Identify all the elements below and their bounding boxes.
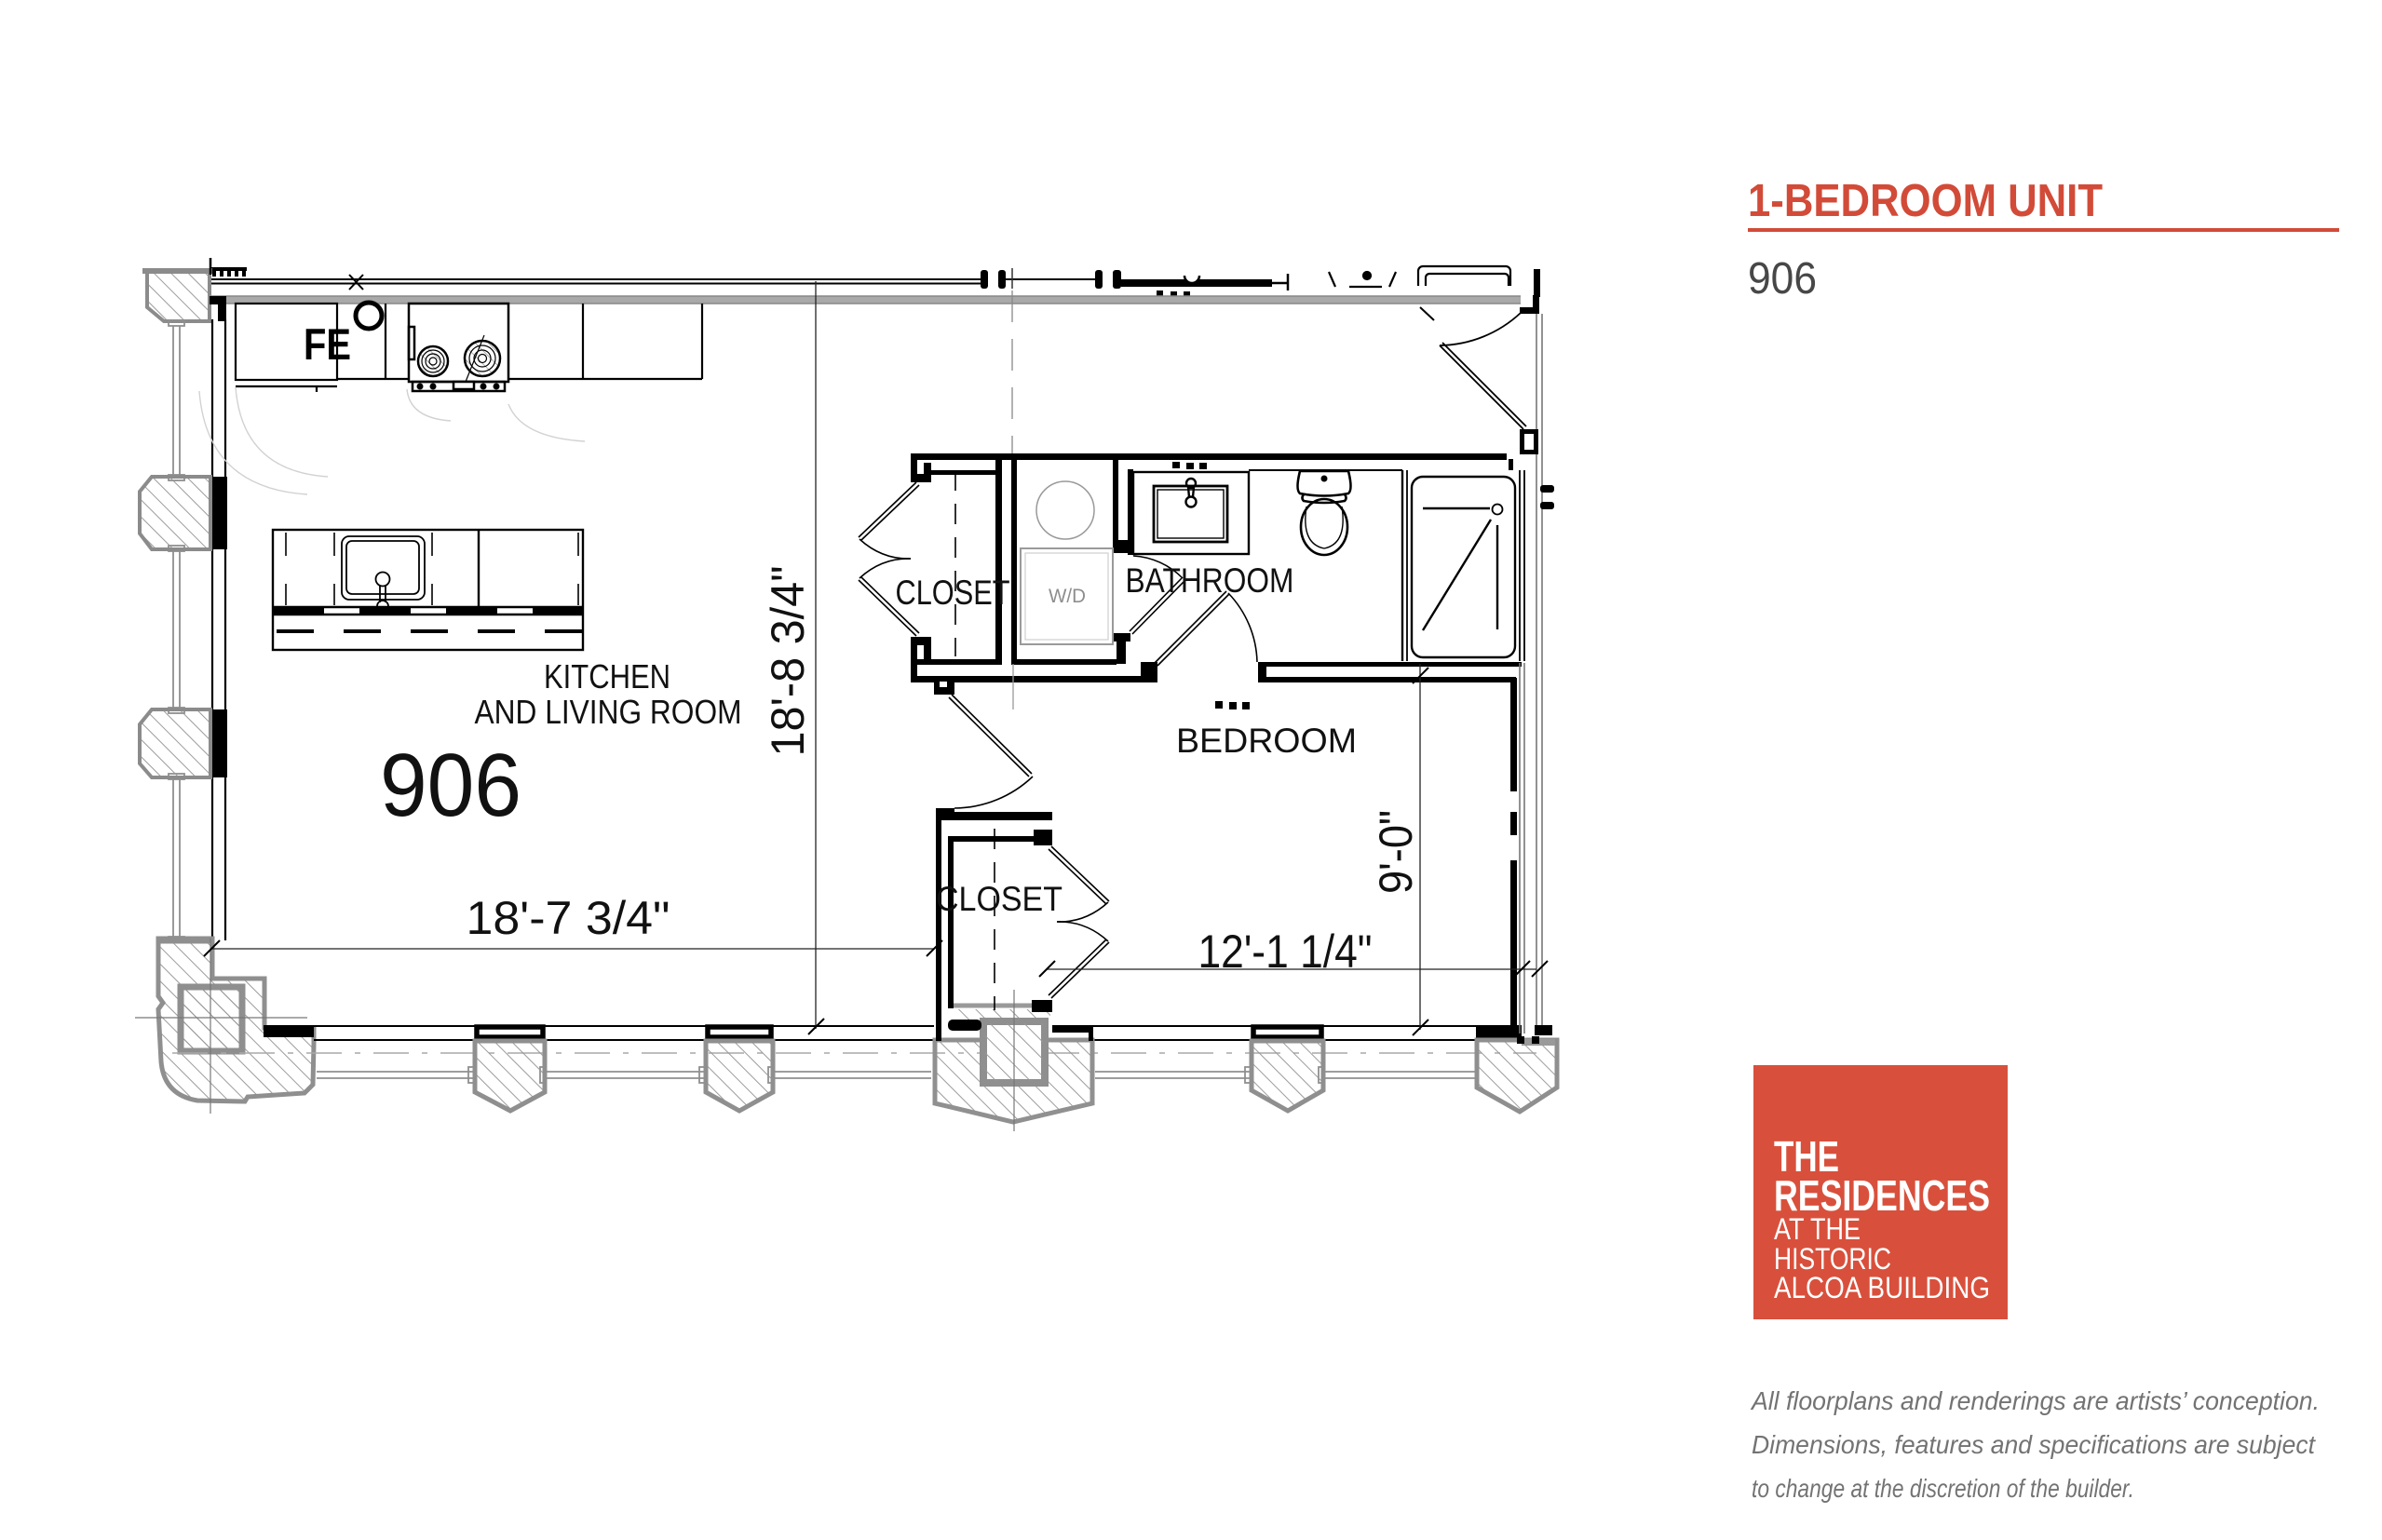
- svg-text:FE: FE: [304, 319, 351, 369]
- svg-text:KITCHEN: KITCHEN: [544, 657, 670, 696]
- svg-text:W/D: W/D: [1049, 586, 1086, 607]
- svg-text:9'-0": 9'-0": [1370, 810, 1422, 894]
- svg-text:All floorplans and renderings: All floorplans and renderings are artist…: [1750, 1386, 2320, 1415]
- svg-text:AT THE: AT THE: [1774, 1212, 1861, 1246]
- svg-text:CLOSET: CLOSET: [896, 574, 1010, 612]
- svg-text:CLOSET: CLOSET: [936, 880, 1062, 918]
- svg-text:18'-8 3/4": 18'-8 3/4": [762, 566, 814, 757]
- svg-text:BEDROOM: BEDROOM: [1176, 722, 1357, 760]
- svg-text:906: 906: [1748, 254, 1817, 304]
- svg-text:1-BEDROOM UNIT: 1-BEDROOM UNIT: [1748, 176, 2103, 226]
- svg-text:AND LIVING ROOM: AND LIVING ROOM: [475, 693, 742, 731]
- svg-text:ALCOA BUILDING: ALCOA BUILDING: [1774, 1271, 1990, 1304]
- svg-text:BATHROOM: BATHROOM: [1126, 561, 1294, 600]
- svg-text:18'-7 3/4": 18'-7 3/4": [467, 892, 670, 944]
- svg-text:Dimensions, features and speci: Dimensions, features and specifications …: [1752, 1430, 2316, 1459]
- svg-text:to change at the discretion of: to change at the discretion of the build…: [1752, 1474, 2134, 1503]
- svg-text:12'-1 1/4": 12'-1 1/4": [1198, 925, 1373, 978]
- svg-text:906: 906: [380, 736, 521, 835]
